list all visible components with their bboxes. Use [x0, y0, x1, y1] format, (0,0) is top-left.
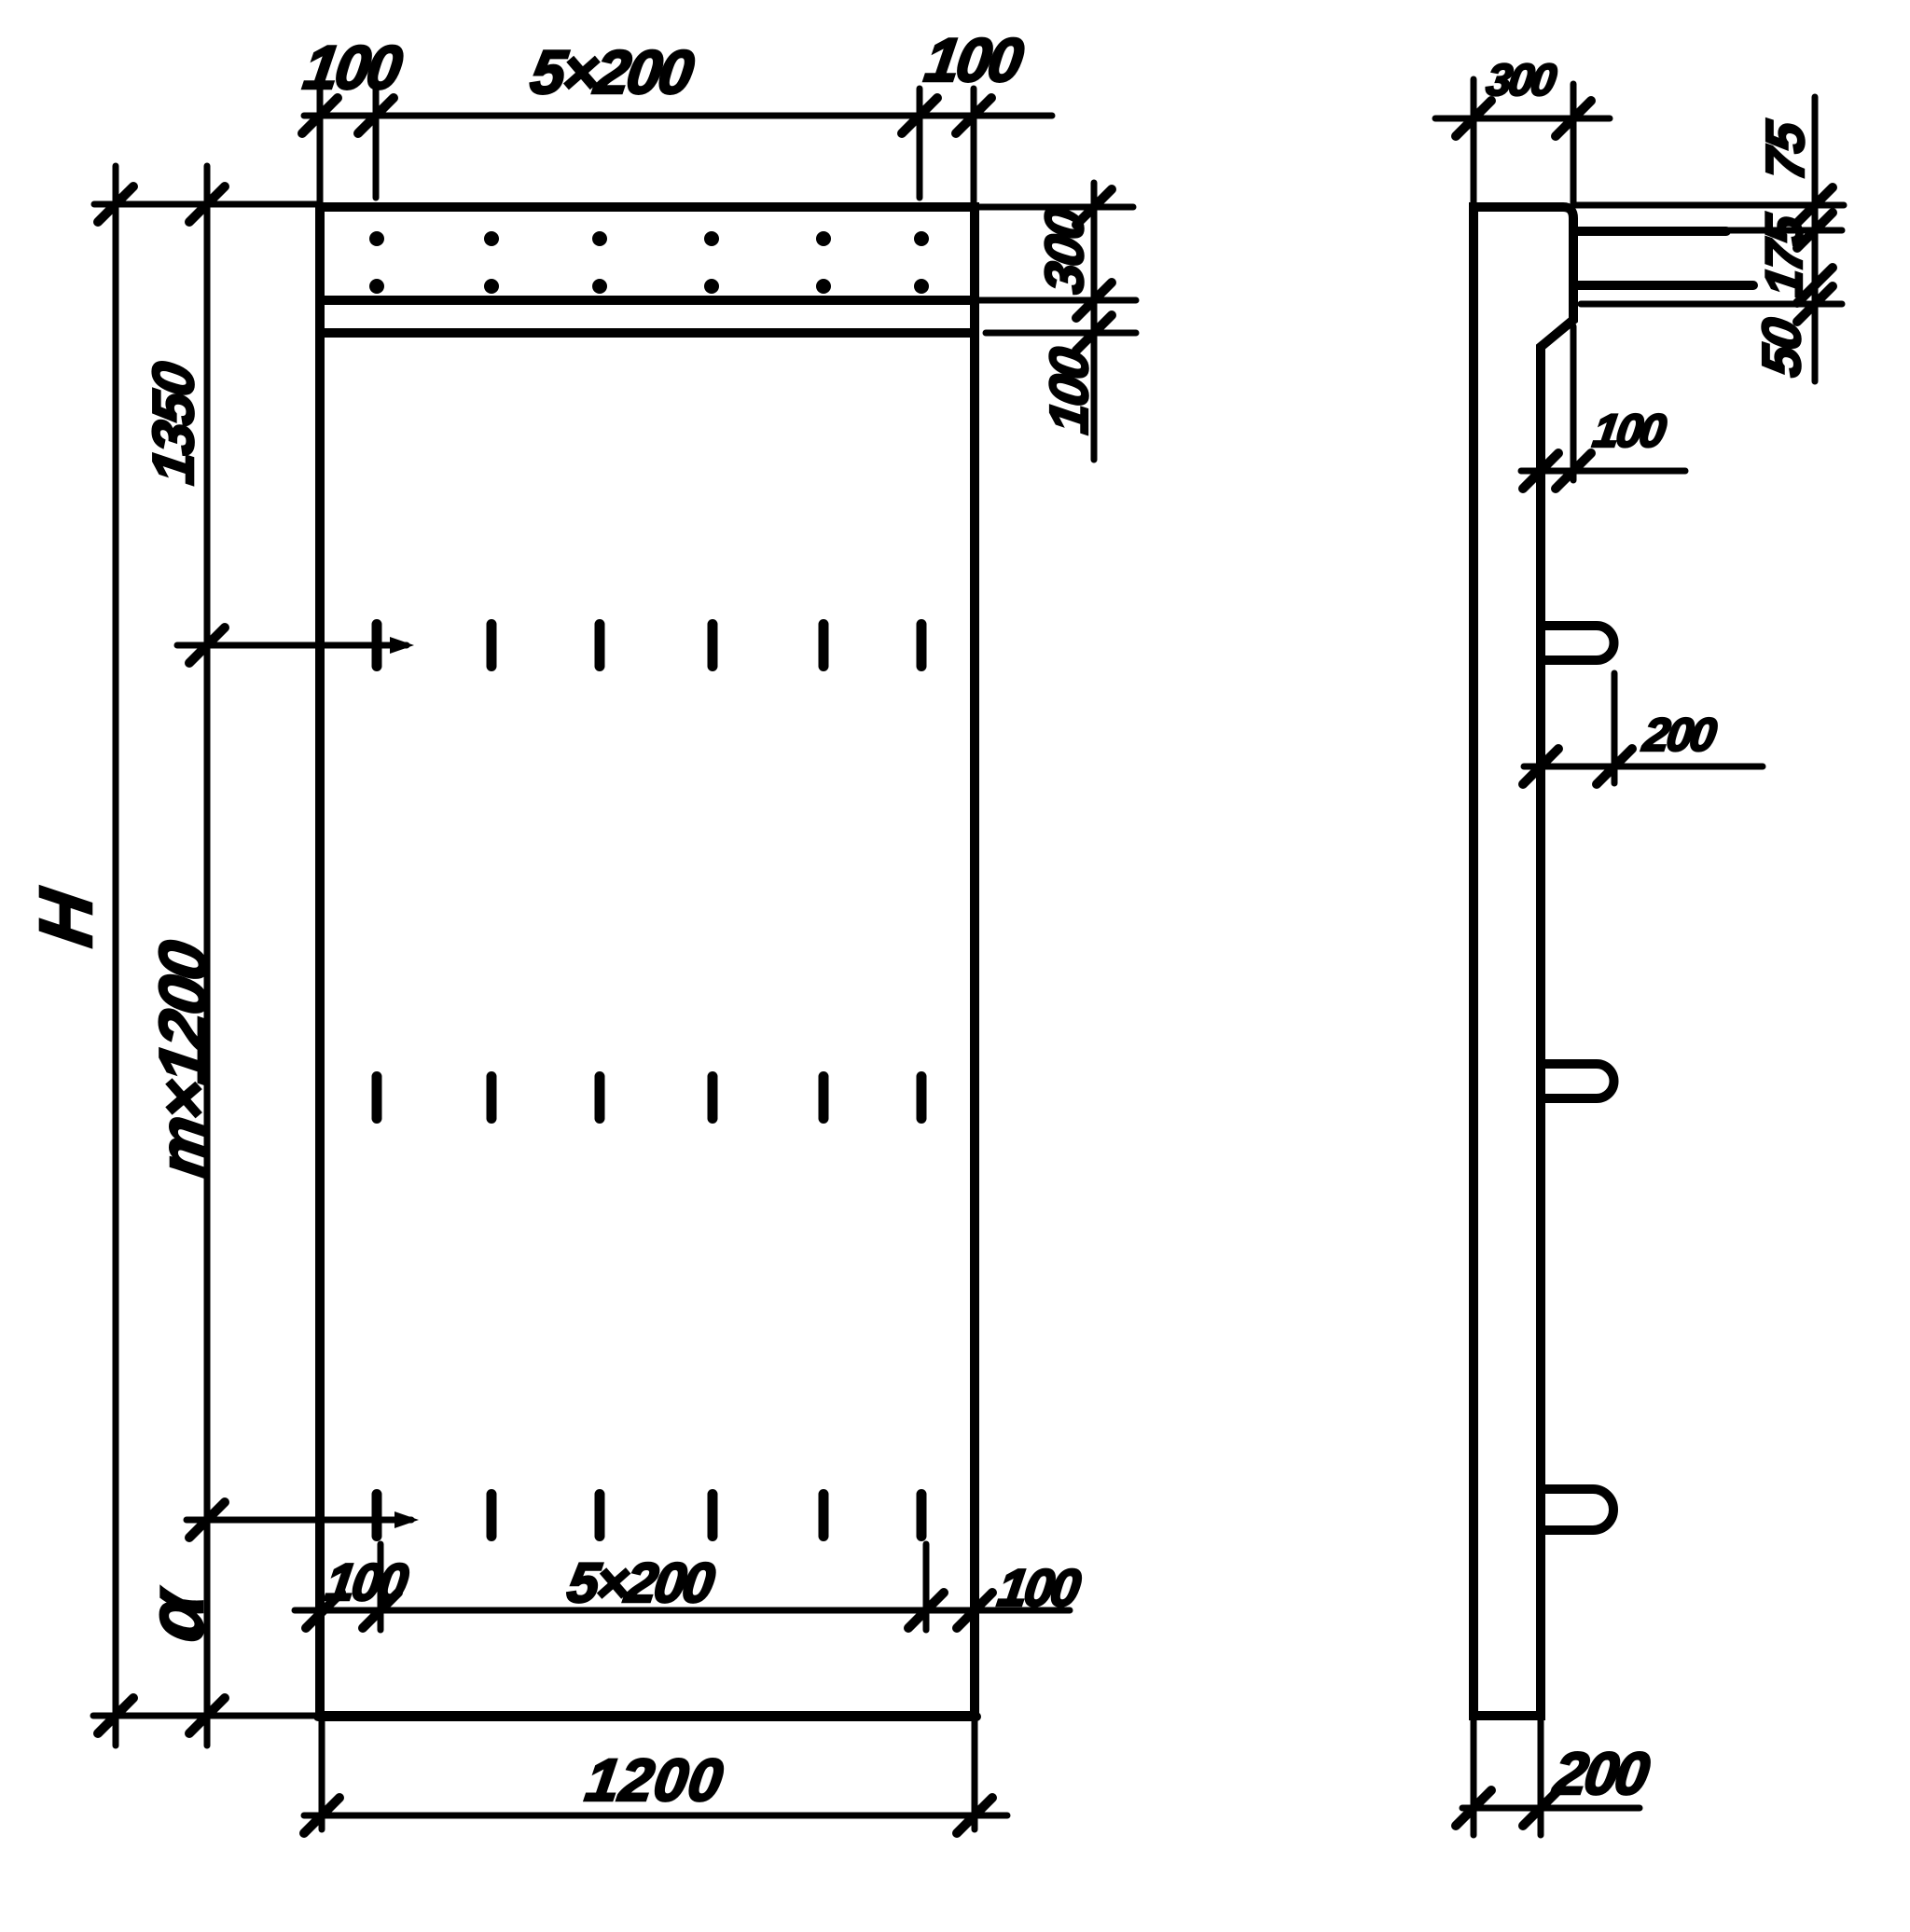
svg-text:5×200: 5×200 — [527, 38, 699, 107]
svg-text:300: 300 — [1034, 204, 1095, 297]
svg-text:100: 100 — [920, 26, 1028, 95]
svg-text:1200: 1200 — [582, 1746, 727, 1814]
svg-text:300: 300 — [1484, 55, 1560, 105]
svg-text:50: 50 — [1751, 315, 1812, 380]
svg-text:200: 200 — [1640, 709, 1720, 761]
svg-text:100: 100 — [1039, 344, 1100, 436]
svg-text:100: 100 — [299, 34, 407, 103]
svg-text:100: 100 — [1590, 405, 1669, 457]
svg-text:175: 175 — [1754, 211, 1813, 301]
svg-text:100: 100 — [994, 1558, 1084, 1617]
svg-text:1350: 1350 — [142, 358, 206, 488]
svg-text:m×1200: m×1200 — [146, 937, 221, 1181]
svg-text:100: 100 — [322, 1552, 411, 1611]
svg-text:200: 200 — [1549, 1740, 1654, 1807]
svg-text:5×200: 5×200 — [563, 1551, 717, 1614]
